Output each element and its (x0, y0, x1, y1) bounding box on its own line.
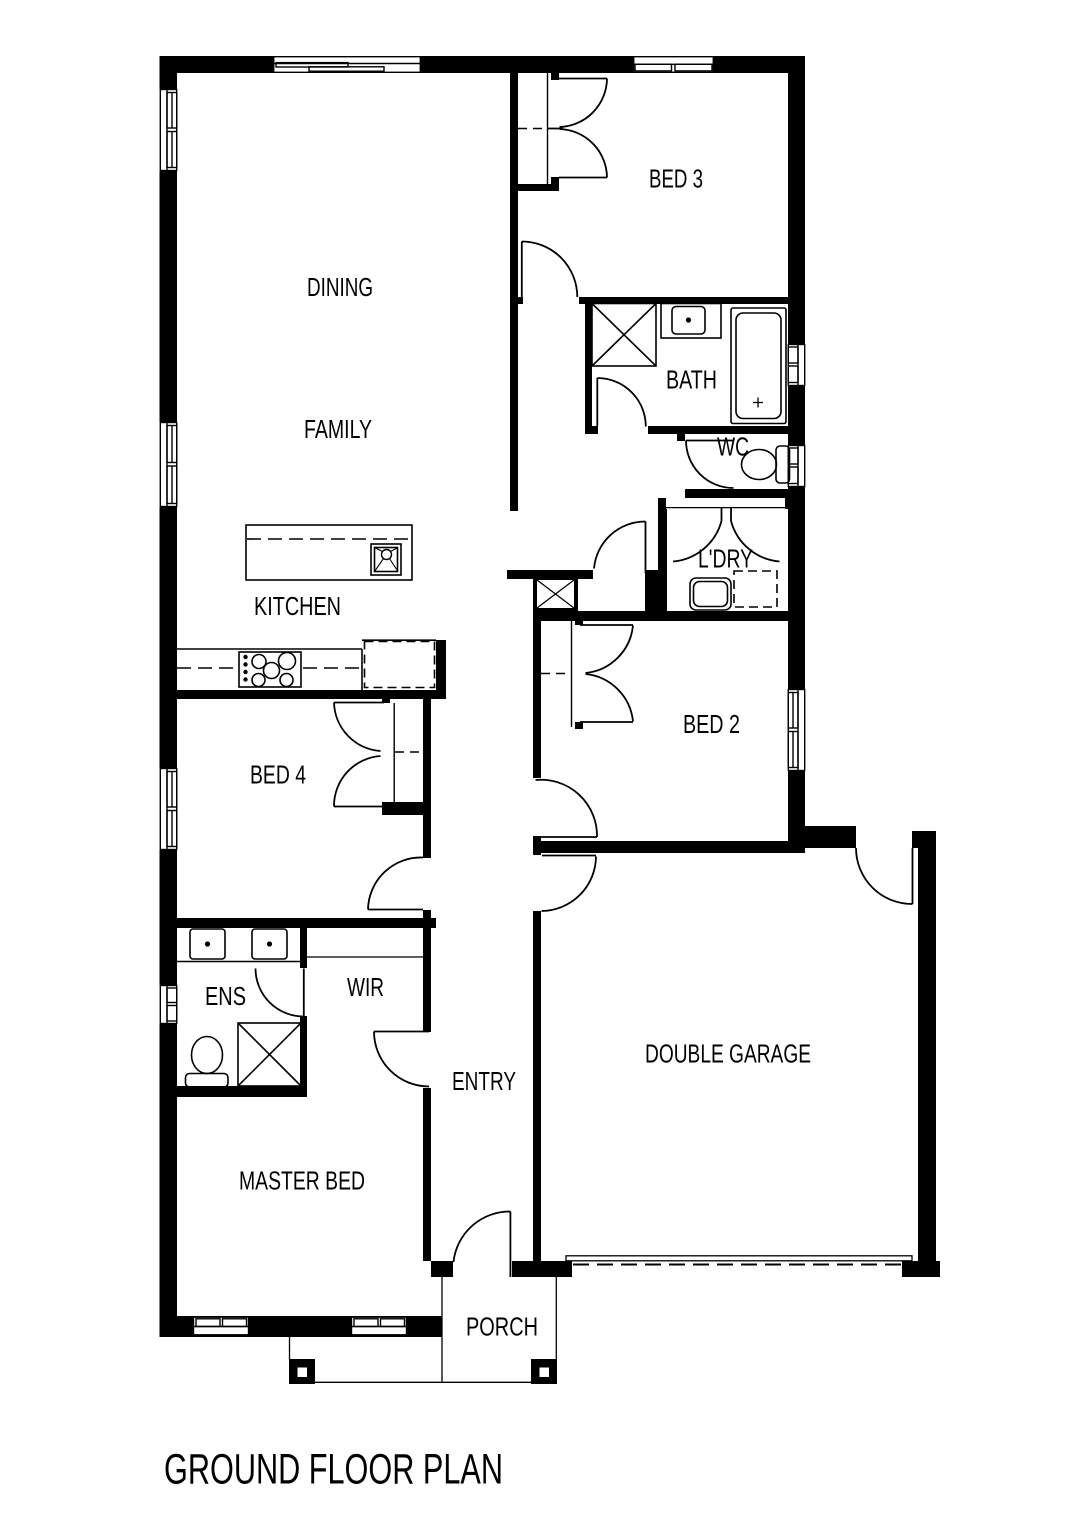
svg-text:DINING: DINING (307, 272, 373, 302)
svg-text:ENS: ENS (205, 981, 246, 1011)
svg-text:WC: WC (717, 432, 749, 462)
svg-text:BED 3: BED 3 (649, 164, 703, 194)
svg-text:L'DRY: L'DRY (698, 544, 753, 574)
svg-text:BED 4: BED 4 (250, 760, 306, 790)
svg-text:FAMILY: FAMILY (304, 414, 372, 444)
svg-text:PORCH: PORCH (466, 1312, 538, 1342)
svg-text:BATH: BATH (666, 365, 717, 395)
svg-text:KITCHEN: KITCHEN (254, 591, 341, 621)
svg-text:ENTRY: ENTRY (452, 1066, 516, 1096)
svg-text:BED 2: BED 2 (683, 709, 740, 739)
svg-text:DOUBLE GARAGE: DOUBLE GARAGE (645, 1039, 811, 1069)
svg-text:MASTER BED: MASTER BED (239, 1166, 365, 1196)
svg-text:GROUND FLOOR PLAN: GROUND FLOOR PLAN (164, 1446, 503, 1494)
svg-text:WIR: WIR (347, 972, 384, 1002)
